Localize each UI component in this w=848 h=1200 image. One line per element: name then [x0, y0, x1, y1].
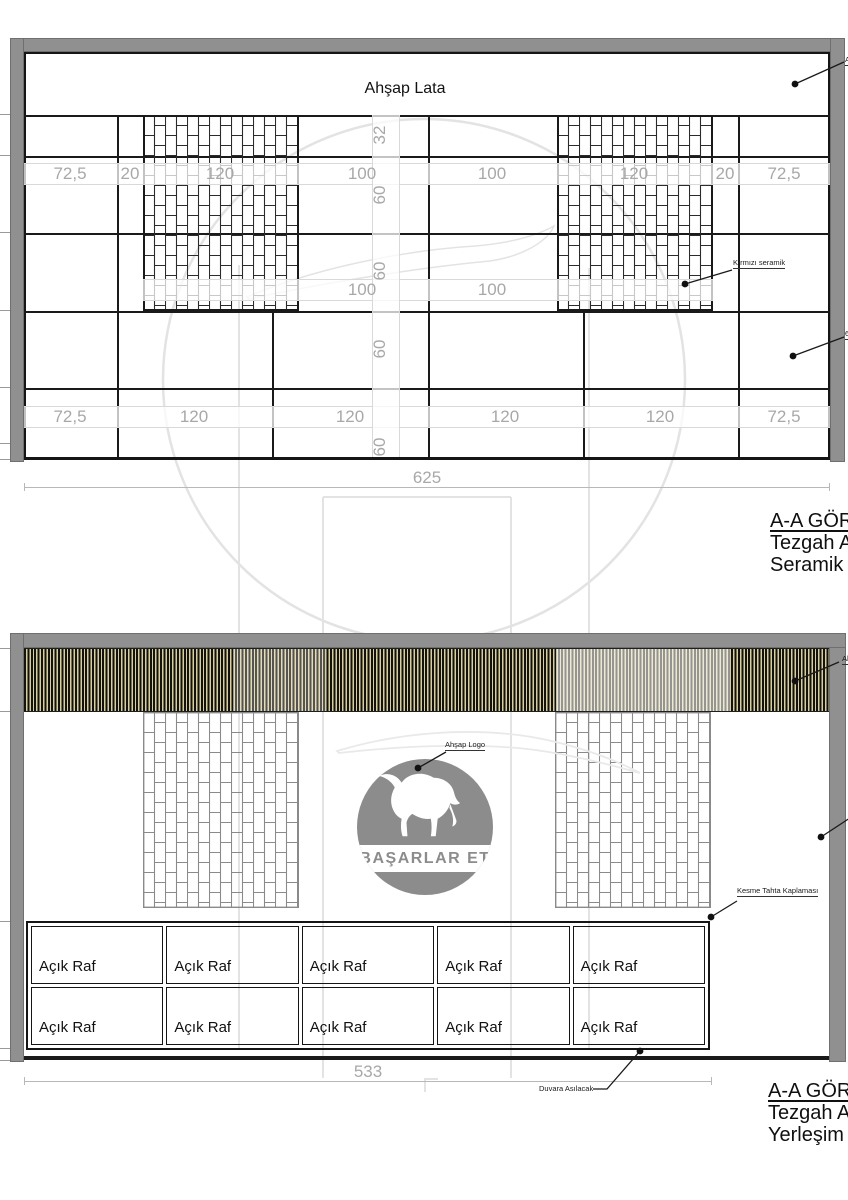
- logo-text-band: BAŞARLAR ET: [357, 845, 493, 872]
- dim-label: 120: [646, 407, 674, 427]
- extension-tick: [0, 443, 10, 444]
- basarlar-et-logo: BAŞARLAR ET: [357, 759, 493, 895]
- dim-label: 72,5: [53, 164, 86, 184]
- red-ceramic-callout: Kırmızı seramik: [733, 258, 785, 269]
- watermark-wash: [556, 649, 730, 711]
- duvara-asilacak-callout: Duvara Asılacak: [539, 1084, 593, 1093]
- shelf-cell-label: Açık Raf: [445, 958, 502, 975]
- dim-label: 20: [716, 164, 735, 184]
- dim-label-vertical: 60: [370, 262, 390, 281]
- tile-joint: [272, 311, 274, 457]
- dim-tick: [711, 1077, 712, 1085]
- dim-tick: [24, 483, 25, 491]
- dim-total-width: 533: [354, 1062, 382, 1082]
- shelf-cell: Açık Raf: [31, 987, 163, 1045]
- caption-sub2: Yerleşim Planı: [768, 1124, 848, 1146]
- white-brick-panel: [555, 712, 711, 908]
- dim-label: 120: [491, 407, 519, 427]
- bottom-wall-right-bar: [829, 647, 846, 1062]
- extension-tick: [0, 648, 10, 649]
- top-wall-top-bar: [10, 38, 845, 52]
- kesme-tahta-callout: Kesme Tahta Kaplaması: [737, 886, 818, 897]
- caption-sub1: Tezgah Arkası: [768, 1102, 848, 1124]
- top-view-caption: A-A GÖRÜNÜŞÜ Tezgah Arkası Seramik Kapla…: [770, 510, 848, 576]
- dim-label: 72,5: [53, 407, 86, 427]
- shelf-cell: Açık Raf: [166, 987, 298, 1045]
- dim-label: 100: [478, 164, 506, 184]
- shelf-unit: Açık Raf Açık Raf Açık Raf Açık Raf Açık…: [26, 921, 710, 1050]
- drawing-sheet: Ahşap Lata 72,5 20 120 100 100 120 20 72…: [0, 0, 848, 1200]
- dim-band-heights: [372, 115, 400, 457]
- shelf-cell: Açık Raf: [573, 926, 705, 984]
- bottom-floor-line: [24, 1056, 829, 1060]
- caption-title: A-A GÖRÜNÜŞÜ: [768, 1080, 848, 1102]
- shelf-cell: Açık Raf: [437, 987, 569, 1045]
- ahsap-logo-callout: Ahşap Logo: [445, 740, 485, 751]
- caption-sub1: Tezgah Arkası: [770, 532, 848, 554]
- dim-label: 100: [348, 164, 376, 184]
- shelf-cell: Açık Raf: [573, 987, 705, 1045]
- extension-tick: [0, 459, 10, 460]
- logo-text: BAŞARLAR ET: [359, 850, 490, 868]
- dim-label: 120: [336, 407, 364, 427]
- shelf-cell-label: Açık Raf: [174, 1019, 231, 1036]
- dim-total-width: 625: [413, 468, 441, 488]
- dim-label-vertical: 32: [370, 126, 390, 145]
- dim-label: 72,5: [767, 407, 800, 427]
- dim-label: 120: [180, 407, 208, 427]
- dim-label: 72,5: [767, 164, 800, 184]
- extension-tick: [0, 1060, 10, 1061]
- watermark-wash: [233, 649, 325, 711]
- shelf-cell-label: Açık Raf: [581, 958, 638, 975]
- dim-tick: [829, 483, 830, 491]
- extension-tick: [0, 114, 10, 115]
- shelf-cell-label: Açık Raf: [310, 958, 367, 975]
- shelf-cell-label: Açık Raf: [174, 958, 231, 975]
- caption-sub2: Seramik Kaplama: [770, 554, 848, 576]
- extension-tick: [0, 310, 10, 311]
- dim-label: 100: [348, 280, 376, 300]
- dim-band-row1: [24, 163, 830, 185]
- dim-band-row2: [143, 279, 713, 301]
- caption-title: A-A GÖRÜNÜŞÜ: [770, 510, 848, 532]
- extension-tick: [0, 155, 10, 156]
- top-floor-line: [24, 457, 830, 460]
- dim-label-vertical: 60: [370, 340, 390, 359]
- dim-tick: [24, 1077, 25, 1085]
- bottom-wall-top-bar: [10, 633, 846, 648]
- top-wall-left-bar: [10, 38, 24, 462]
- dim-label: 120: [206, 164, 234, 184]
- dim-label: 100: [478, 280, 506, 300]
- shelf-cell: Açık Raf: [302, 987, 434, 1045]
- tile-joint: [583, 311, 585, 457]
- shelf-cell: Açık Raf: [302, 926, 434, 984]
- dim-label-vertical: 60: [370, 186, 390, 205]
- tile-joint: [24, 311, 830, 313]
- top-panel-label: Ahşap Lata: [365, 80, 446, 98]
- tile-joint: [24, 388, 830, 390]
- extension-tick: [0, 1048, 10, 1049]
- shelf-cell-label: Açık Raf: [445, 1019, 502, 1036]
- extension-tick: [0, 711, 10, 712]
- extension-tick: [0, 232, 10, 233]
- bottom-wall-left-bar: [10, 633, 24, 1062]
- bottom-view-caption: A-A GÖRÜNÜŞÜ Tezgah Arkası Yerleşim Plan…: [768, 1080, 848, 1146]
- edge-callout-ahsap-lata: Ahşap Lata: [842, 654, 848, 665]
- shelf-cell: Açık Raf: [437, 926, 569, 984]
- extension-tick: [0, 387, 10, 388]
- shelf-cell-label: Açık Raf: [581, 1019, 638, 1036]
- shelf-cell-label: Açık Raf: [310, 1019, 367, 1036]
- top-wall-right-bar: [830, 38, 845, 462]
- extension-tick: [0, 921, 10, 922]
- bull-icon: [373, 769, 477, 847]
- shelf-cell-label: Açık Raf: [39, 958, 96, 975]
- dim-label: 120: [620, 164, 648, 184]
- dim-band-row3: [24, 406, 830, 428]
- shelf-cell: Açık Raf: [166, 926, 298, 984]
- shelf-cell-label: Açık Raf: [39, 1019, 96, 1036]
- dim-label: 20: [121, 164, 140, 184]
- dim-label-vertical: 60: [370, 438, 390, 457]
- shelf-cell: Açık Raf: [31, 926, 163, 984]
- white-brick-panel: [143, 712, 299, 908]
